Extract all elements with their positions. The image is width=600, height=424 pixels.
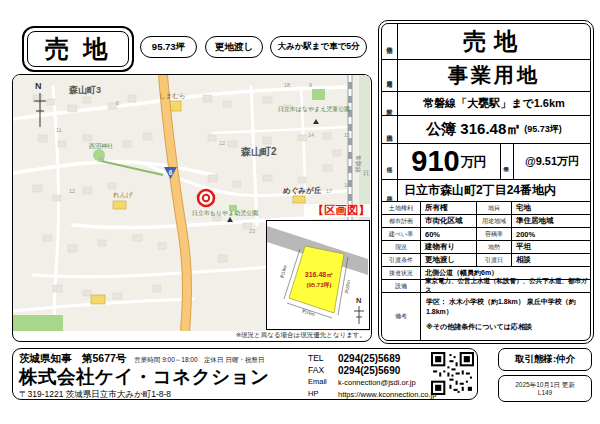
row-value: 建物有り xyxy=(421,241,477,253)
svg-text:16: 16 xyxy=(344,182,350,188)
sale-title: 売 地 xyxy=(27,31,129,67)
label-shimamura: しまむら xyxy=(159,92,186,100)
plot-diagram-canvas: 316.48㎡ (95.73坪) 約19m 約22m 約16m N xyxy=(267,221,368,328)
spec-label-price: 価格 xyxy=(382,144,398,179)
dim-right: 約22m xyxy=(343,279,351,293)
spec-value-type: 売地 xyxy=(398,24,590,59)
label-town2: 森山町2 xyxy=(240,146,277,157)
row-label: 容積率 xyxy=(477,228,512,240)
utilities-value: 東京電力、公営上水道（私設管）、公共下水道、都市ガス xyxy=(421,280,590,292)
svg-text:18: 18 xyxy=(284,82,290,88)
row-value: 準住居地域 xyxy=(512,215,590,227)
svg-text:12: 12 xyxy=(219,140,225,146)
land-area-value: 公簿 316.48㎡ xyxy=(426,120,521,139)
fax-value: 0294(25)5690 xyxy=(338,365,436,376)
transaction-type-box: 取引態様:仲介 xyxy=(498,348,592,371)
row-value: 市街化区域 xyxy=(421,215,477,227)
svg-text:12: 12 xyxy=(69,188,75,194)
contact-block: TEL 0294(25)5689 FAX 0294(25)5690 Email … xyxy=(308,353,436,400)
tel-value: 0294(25)5689 xyxy=(338,353,436,364)
tel-label: TEL xyxy=(308,353,338,364)
spec-label-area: 土地面積 xyxy=(382,116,398,143)
row-label: 地勢 xyxy=(477,241,512,253)
svg-text:15: 15 xyxy=(344,132,350,138)
dim-bottom: 約16m xyxy=(301,307,316,317)
utilities-label: 設備 xyxy=(382,280,421,292)
business-hours: 営業時間 9:00～18:00 定休日 日曜・祝祭日 xyxy=(134,356,264,365)
price-unit: 万円 xyxy=(461,153,487,171)
svg-text:17: 17 xyxy=(326,188,332,194)
row-label: 用途地域 xyxy=(477,215,512,227)
hp-value: https://www.kconnection.co.jp xyxy=(338,389,436,400)
remarks-line2: ※その他諸条件については応相談 xyxy=(426,322,590,332)
spec-panel: 物件種別 売地 最適用途 事業用地 最寄駅 常磐線「大甕駅」まで1.6km 土地… xyxy=(378,20,594,344)
svg-text:6: 6 xyxy=(116,100,119,106)
row-value: 200% xyxy=(512,228,590,240)
row-label: 建ぺい率 xyxy=(382,228,421,240)
email-label: Email xyxy=(308,377,338,388)
row-label: 都市計画 xyxy=(382,215,421,227)
label-town3: 森山町3 xyxy=(68,85,101,95)
label-hanayama-park: 日立市はなやまえ児童公園 xyxy=(278,105,351,113)
svg-text:14: 14 xyxy=(308,132,314,138)
spec-label-station: 最寄駅 xyxy=(382,92,398,115)
spec-value-area: 公簿 316.48㎡ (95.73坪) xyxy=(398,116,590,143)
flyer-page: 売 地 95.73坪 更地渡し 大みか駅まで車で5分 xyxy=(0,0,600,424)
row-value: 所有権 xyxy=(421,202,477,214)
remarks-label: 備考 xyxy=(382,293,421,340)
row-label: 引渡日 xyxy=(477,254,512,266)
plot-area-m2: 316.48㎡ xyxy=(305,271,333,278)
spec-label-type: 物件種別 xyxy=(382,24,398,59)
fax-label: FAX xyxy=(308,365,338,376)
svg-text:9: 9 xyxy=(309,82,312,88)
company-info-box: 茨城県知事 第5677号 営業時間 9:00～18:00 定休日 日曜・祝祭日 … xyxy=(12,348,478,400)
label-megumigaoka: めぐみが丘 xyxy=(283,186,322,195)
row-value: 平坦 xyxy=(512,241,590,253)
row-value: 宅地 xyxy=(512,202,590,214)
svg-text:6: 6 xyxy=(169,169,173,176)
plot-area-tsubo: (95.73坪) xyxy=(306,282,331,288)
inset-north-label: N xyxy=(356,296,361,305)
unit-price-value: @9.51万円 xyxy=(514,144,590,179)
price-number: 910 xyxy=(411,147,459,176)
location-map: 6 N 森山町3 森山町2 めぐみが丘 しまむら 西沼神社 れんげ 日立市はなや… xyxy=(12,74,372,342)
dim-left: 約19m xyxy=(278,264,288,279)
remarks-value: 学区： 水木小学校（約1.8km） 泉丘中学校（約1.8km） ※その他諸条件に… xyxy=(421,293,590,340)
spec-label-use: 最適用途 xyxy=(382,60,398,91)
pill-station-access: 大みか駅まで車で5分 xyxy=(270,36,367,58)
label-joban-line: 常磐線 xyxy=(354,155,362,173)
svg-text:23: 23 xyxy=(249,228,255,234)
sale-title-box: 売 地 xyxy=(22,26,134,72)
pill-vacant-land: 更地渡し xyxy=(205,36,263,58)
land-area-tsubo: (95.73坪) xyxy=(524,123,562,136)
spec-label-address: 所在地 xyxy=(382,180,398,201)
north-label: N xyxy=(35,81,42,91)
spec-value-price: 910 万円 xyxy=(398,144,500,179)
svg-text:13: 13 xyxy=(98,157,104,163)
row-label: 土地権利 xyxy=(382,202,421,214)
row-label: 引渡条件 xyxy=(382,254,421,266)
inset-north-arrow xyxy=(354,306,364,324)
plot-diagram: 316.48㎡ (95.73坪) 約19m 約22m 約16m N xyxy=(266,220,370,330)
listing-code: L149 xyxy=(538,389,552,397)
plot-shape xyxy=(289,246,344,313)
update-date: 2025年10月1日 更新 xyxy=(515,381,575,389)
property-location-marker xyxy=(197,189,216,208)
spec-value-use: 事業用地 xyxy=(398,60,590,91)
label-moriyama-park: 日立市もりやま幼児公園 xyxy=(192,209,259,217)
row-label: 地目 xyxy=(477,202,512,214)
road-label: 接道状況 xyxy=(382,267,421,279)
unit-price-label: 坪単価 xyxy=(500,144,514,179)
pill-area: 95.73坪 xyxy=(140,36,197,58)
hp-label: HP xyxy=(308,389,338,400)
label-shrine: 西沼神社 xyxy=(89,142,113,150)
label-renge: れんげ xyxy=(113,191,133,199)
row-label: 現況 xyxy=(382,241,421,253)
svg-text:11: 11 xyxy=(56,127,62,133)
license-number: 茨城県知事 第5677号 xyxy=(19,352,126,366)
map-disclaimer: ※現況と異なる場合は現況優先となります。 xyxy=(236,331,366,340)
remarks-line1: 学区： 水木小学校（約1.8km） 泉丘中学校（約1.8km） xyxy=(426,297,590,317)
update-info-box: 2025年10月1日 更新 L149 xyxy=(498,375,592,402)
label-hitachi: 日立 xyxy=(363,169,370,177)
spec-value-station: 常磐線「大甕駅」まで1.6km xyxy=(398,92,590,115)
row-value: 60% xyxy=(421,228,477,240)
qr-code xyxy=(431,352,474,395)
spec-value-address: 日立市森山町2丁目24番地内 xyxy=(398,180,590,201)
row-value: 相談 xyxy=(512,254,590,266)
row-value: 更地渡し xyxy=(421,254,477,266)
email-value: k-connection@jsdi.or.jp xyxy=(338,377,436,388)
plot-diagram-title: 【区画図】 xyxy=(304,204,370,217)
